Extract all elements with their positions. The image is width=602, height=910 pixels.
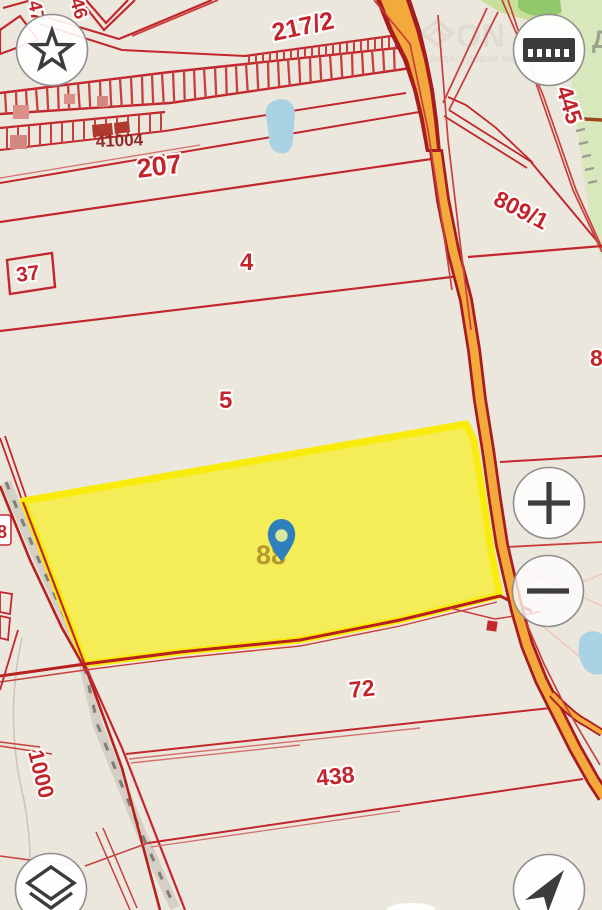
svg-text:72: 72: [348, 674, 376, 703]
svg-text:Д: Д: [592, 26, 602, 54]
svg-text:8: 8: [0, 522, 7, 542]
svg-text:41004: 41004: [95, 130, 143, 151]
svg-text:207: 207: [135, 149, 183, 184]
svg-text:5: 5: [219, 387, 232, 414]
svg-text:8: 8: [590, 345, 602, 371]
svg-text:37: 37: [15, 261, 41, 287]
svg-text:438: 438: [315, 761, 356, 791]
svg-text:ON: ON: [456, 18, 506, 54]
svg-text:4: 4: [240, 249, 254, 276]
